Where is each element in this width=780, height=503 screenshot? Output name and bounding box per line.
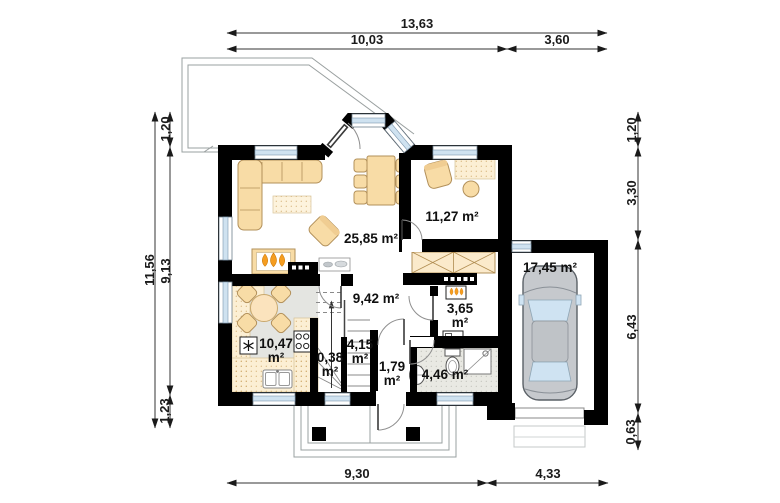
- windshield: [528, 300, 572, 321]
- bath-bottom-window: [437, 393, 473, 405]
- stairs-label: 4,15m²: [347, 337, 374, 366]
- dim-top-total: 13,63: [401, 16, 434, 31]
- dim-top-main: 10,03: [351, 32, 384, 47]
- closet-label: 0,38m²: [317, 350, 344, 379]
- kitchen-table: [251, 295, 278, 322]
- house-right-wall: [498, 252, 512, 406]
- corridor-door-opening: [320, 273, 341, 287]
- garage-apron: [514, 426, 585, 447]
- corner-sofa: [238, 160, 322, 230]
- rear-window: [529, 362, 571, 381]
- vestibule-label: 1,79m²: [379, 359, 405, 388]
- sideboard: [319, 258, 350, 271]
- desk-texture: [455, 159, 495, 179]
- kitchen-sink-icon: [263, 370, 292, 388]
- window: [255, 146, 297, 159]
- front-door-opening: [376, 391, 406, 407]
- stairs-bottom-window: [325, 393, 350, 405]
- car: [519, 266, 581, 400]
- garage-door: [515, 408, 584, 418]
- dim-right-apron: 0,63: [623, 419, 638, 444]
- vestibule-right-wall: [410, 345, 417, 392]
- shelf-slot: [305, 266, 309, 270]
- garage-content: [515, 266, 584, 418]
- bay-diagonal-window: [385, 121, 414, 152]
- living-office-wall: [399, 153, 411, 240]
- stove-icon: [294, 331, 311, 352]
- hall-label: 9,42 m²: [353, 291, 400, 306]
- dim-top-garage: 3,60: [544, 32, 569, 47]
- radiator-icon: [446, 286, 466, 299]
- dim-left-porch: 1,23: [157, 398, 172, 423]
- dim-right-garage: 6,43: [624, 314, 639, 339]
- porch-inner-edge: [308, 406, 442, 443]
- boiler-door-opening: [429, 296, 439, 320]
- living-room-label: 25,85 m²: [344, 231, 399, 246]
- office-label: 11,27 m²: [425, 209, 479, 224]
- side-mirror: [576, 295, 581, 305]
- left-exterior-wall: [218, 145, 232, 406]
- sofa-left: [238, 160, 262, 230]
- bay-top-window: [352, 114, 385, 127]
- stove-body: [294, 331, 311, 352]
- vestibule-door-arc: [378, 319, 404, 345]
- living-left-window: [219, 217, 232, 260]
- porch-column: [406, 427, 420, 441]
- hook-dot: [470, 277, 474, 281]
- toilet-tank: [445, 349, 460, 356]
- dim-right-bay: 1,20: [624, 117, 639, 142]
- office-armchair: [423, 159, 453, 189]
- coffee-rug-texture: [273, 196, 311, 213]
- decor-item: [324, 262, 333, 267]
- terrace: [182, 58, 414, 152]
- garage-label: 17,45 m²: [523, 260, 578, 275]
- bath-label: 4,46 m²: [422, 367, 469, 382]
- dining-chair: [354, 159, 367, 172]
- shelf-slot: [299, 266, 303, 270]
- hook-dot: [451, 277, 455, 281]
- side-mirror: [519, 295, 524, 305]
- wardrobe: [412, 252, 495, 273]
- dining-table: [367, 156, 395, 205]
- hook-dot: [464, 277, 468, 281]
- tv-shelf: [288, 262, 318, 274]
- hook-dot: [457, 277, 461, 281]
- front-door-arc: [378, 404, 404, 430]
- upper-flight-dashed: [316, 293, 344, 313]
- living-room-furniture: [238, 156, 409, 274]
- dining-chair: [354, 175, 367, 188]
- office-right-wall: [498, 145, 512, 252]
- terrace-step-mark: [204, 146, 213, 152]
- desk-chair: [463, 181, 479, 197]
- shelf-slot: [292, 266, 296, 270]
- decor-item: [335, 261, 347, 267]
- office-door-opening: [402, 239, 422, 252]
- floor-plan-canvas: 25,85 m² 11,27 m² 17,45 m² 9,42 m² 4,46 …: [0, 0, 780, 503]
- fridge-icon: [240, 337, 257, 354]
- dim-left-house: 9,13: [158, 258, 173, 283]
- office-window: [433, 146, 477, 159]
- office-furniture: [423, 159, 495, 197]
- dim-bottom-main: 9,30: [344, 466, 369, 481]
- garage-right-wall: [594, 240, 608, 425]
- kitchen-left-window: [219, 282, 232, 323]
- porch-columns: [312, 427, 420, 441]
- dim-right-office: 3,30: [624, 180, 639, 205]
- garage-small-window: [512, 241, 531, 252]
- terrace-outer-edge: [182, 58, 414, 152]
- car-roof: [532, 321, 568, 362]
- bath-door-opening: [409, 337, 434, 347]
- dim-bottom-garage: 4,33: [535, 466, 560, 481]
- dining-chair: [354, 191, 367, 204]
- faucet: [276, 370, 279, 373]
- kitchen-bottom-window: [253, 393, 295, 405]
- floor-plan: 25,85 m² 11,27 m² 17,45 m² 9,42 m² 4,46 …: [0, 0, 780, 503]
- garage-bottom-corner: [584, 410, 608, 425]
- armchair: [307, 214, 341, 248]
- dim-left-total: 11,56: [142, 254, 157, 286]
- corridor-door-arc: [319, 286, 341, 308]
- boiler-label: 3,65m²: [447, 301, 474, 330]
- porch-column: [312, 427, 326, 441]
- dim-left-bay: 1,20: [158, 116, 173, 141]
- hook-dot: [444, 277, 448, 281]
